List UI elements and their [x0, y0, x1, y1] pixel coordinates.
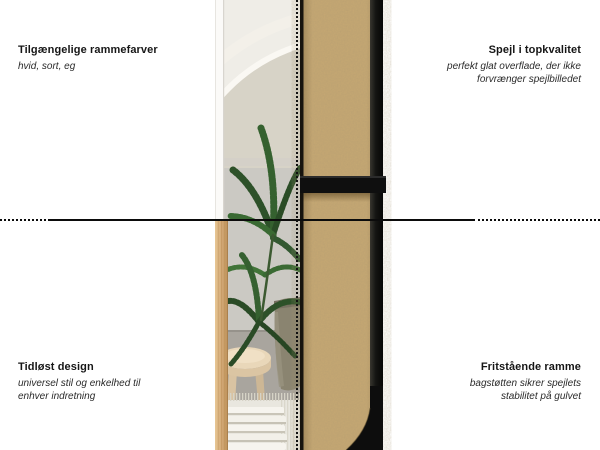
- back-left-edge: [300, 0, 304, 450]
- stacked-mats: [224, 407, 287, 450]
- mirror-infographic: Tilgængelige rammefarver hvid, sort, eg …: [0, 0, 600, 450]
- rug: [224, 393, 300, 450]
- horizontal-dotted-line-right: [473, 219, 600, 221]
- annotation-frame-colors: Tilgængelige rammefarver hvid, sort, eg: [18, 44, 158, 73]
- annotation-subtitle: perfekt glat overflade, der ikke forvræn…: [447, 60, 581, 86]
- annotation-freestanding-frame: Fritstående ramme bagstøtten sikrer spej…: [470, 361, 581, 403]
- annotation-subtitle: hvid, sort, eg: [18, 60, 158, 73]
- annotation-timeless-design: Tidløst design universel stil og enkelhe…: [18, 361, 140, 403]
- product-photo: [215, 0, 383, 450]
- annotation-title: Fritstående ramme: [470, 361, 581, 373]
- oak-frame-sample: [215, 220, 228, 450]
- white-frame-sample: [215, 0, 224, 220]
- mirror-back-photo: [300, 0, 383, 450]
- annotation-title: Tidløst design: [18, 361, 140, 373]
- annotation-subtitle: universel stil og enkelhed til enhver in…: [18, 377, 140, 403]
- annotation-subtitle: bagstøtten sikrer spejlets stabilitet på…: [470, 377, 581, 403]
- horizontal-dotted-line-left: [0, 219, 50, 221]
- horizontal-solid-line: [50, 219, 473, 221]
- black-frame-edge: [370, 0, 383, 450]
- vertical-dotted-divider: [296, 0, 298, 450]
- mirror-front-photo: [215, 0, 300, 450]
- annotation-mirror-quality: Spejl i topkvalitet perfekt glat overfla…: [447, 44, 581, 86]
- annotation-title: Spejl i topkvalitet: [447, 44, 581, 56]
- annotation-title: Tilgængelige rammefarver: [18, 44, 158, 56]
